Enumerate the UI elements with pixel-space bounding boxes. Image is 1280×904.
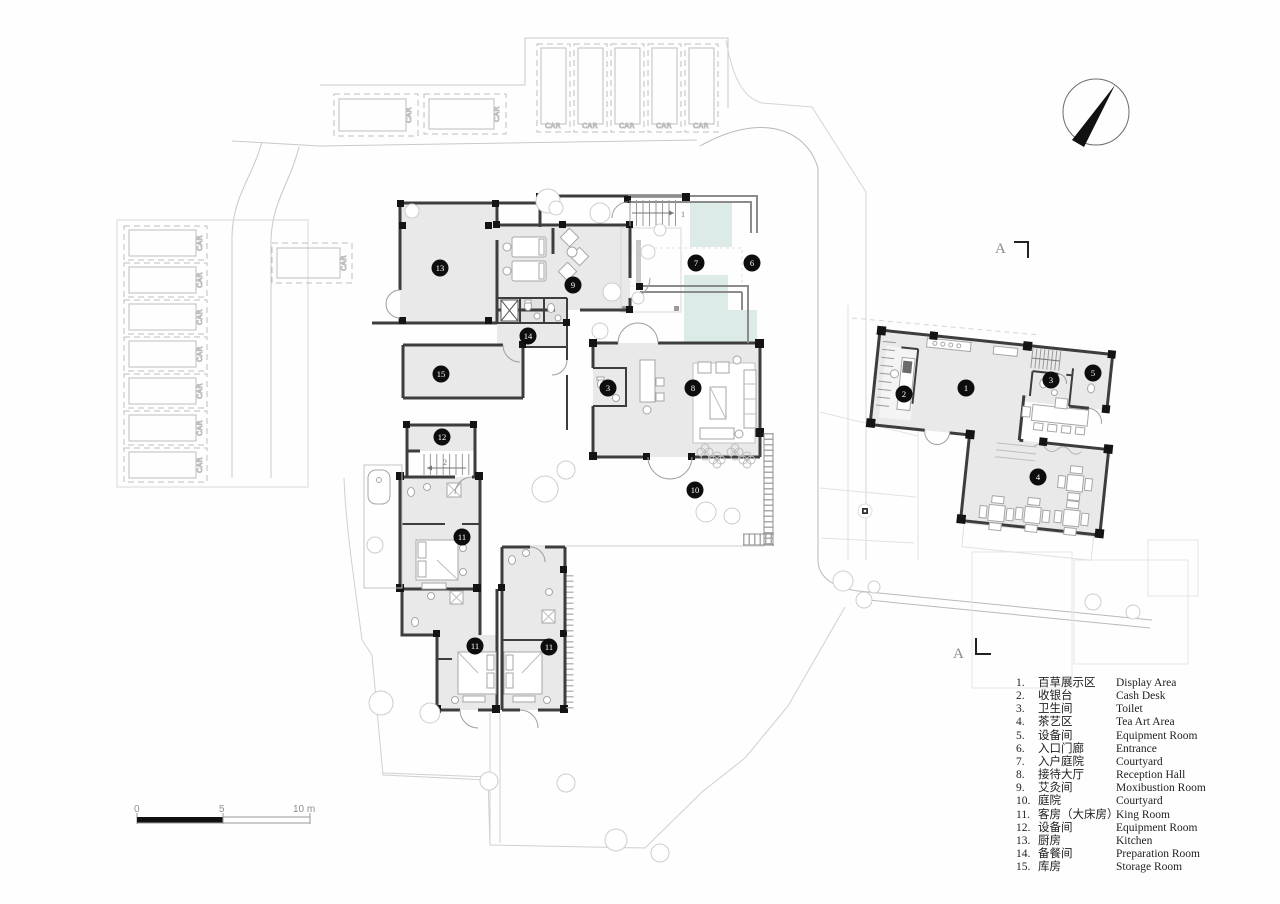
legend-label-zh: 入户庭院 [1038, 756, 1116, 769]
room-marker-number: 2 [902, 389, 906, 399]
legend-row: 12.设备间Equipment Room [1016, 822, 1216, 835]
car-space-label: CAR [196, 272, 204, 288]
parking-area-left: CAR CAR CAR CAR CAR CAR CAR CAR [124, 226, 352, 482]
legend-label-zh: 卫生间 [1038, 703, 1116, 716]
legend-label-en: Courtyard [1116, 756, 1216, 769]
legend-row: 6.入口门廊Entrance [1016, 743, 1216, 756]
legend-label-zh: 收银台 [1038, 690, 1116, 703]
car-space-label: CAR [693, 122, 709, 130]
legend-row: 10.庭院Courtyard [1016, 795, 1216, 808]
legend-number: 14. [1016, 848, 1038, 861]
car-space-label: CAR [340, 255, 348, 271]
legend-row: 14.备餐间Preparation Room [1016, 848, 1216, 861]
legend-row: 8.接待大厅Reception Hall [1016, 769, 1216, 782]
north-arrow [1063, 79, 1129, 147]
section-letter: A [953, 646, 964, 662]
legend-row: 1.百草展示区Display Area [1016, 677, 1216, 690]
site-point-marker [858, 504, 872, 518]
legend-label-en: Kitchen [1116, 835, 1216, 848]
room-marker-number: 9 [571, 280, 575, 290]
legend: 1.百草展示区Display Area2.收银台Cash Desk3.卫生间To… [1016, 677, 1216, 874]
stair-number-label: 2 [443, 458, 447, 467]
room-marker-number: 5 [1091, 368, 1095, 378]
legend-label-zh: 厨房 [1038, 835, 1116, 848]
legend-label-en: Preparation Room [1116, 848, 1216, 861]
scale-tick-label: 10 m [293, 804, 315, 815]
legend-label-en: Cash Desk [1116, 690, 1216, 703]
legend-number: 6. [1016, 743, 1038, 756]
north-arrow-needle [1072, 85, 1115, 147]
car-space-label: CAR [196, 457, 204, 473]
parking-area-top: CAR CAR CAR CAR CAR CAR CAR [334, 44, 718, 136]
legend-label-en: Display Area [1116, 677, 1216, 690]
legend-row: 15.库房Storage Room [1016, 861, 1216, 874]
legend-label-zh: 百草展示区 [1038, 677, 1116, 690]
legend-number: 5. [1016, 730, 1038, 743]
room-marker-number: 1 [964, 383, 968, 393]
car-space-label: CAR [405, 107, 413, 123]
legend-label-en: Moxibustion Room [1116, 782, 1216, 795]
legend-number: 3. [1016, 703, 1038, 716]
staircase-upper [630, 200, 676, 226]
legend-row: 13.厨房Kitchen [1016, 835, 1216, 848]
car-space-label: CAR [545, 122, 561, 130]
legend-number: 1. [1016, 677, 1038, 690]
annex-building [854, 326, 1123, 562]
legend-label-en: Equipment Room [1116, 822, 1216, 835]
legend-label-zh: 庭院 [1038, 795, 1116, 808]
legend-number: 11. [1016, 809, 1038, 822]
legend-label-zh: 设备间 [1038, 822, 1116, 835]
room-marker-number: 13 [436, 263, 445, 273]
room-marker-number: 11 [545, 642, 553, 652]
legend-number: 8. [1016, 769, 1038, 782]
car-space-label: CAR [619, 122, 635, 130]
car-space-label: CAR [656, 122, 672, 130]
legend-number: 10. [1016, 795, 1038, 808]
room-marker-number: 15 [437, 369, 446, 379]
legend-label-zh: 接待大厅 [1038, 769, 1116, 782]
legend-label-en: Toilet [1116, 703, 1216, 716]
legend-row: 11.客房（大床房）King Room [1016, 809, 1216, 822]
water-features [684, 203, 757, 343]
legend-row: 3.卫生间Toilet [1016, 703, 1216, 716]
legend-row: 9.艾灸间Moxibustion Room [1016, 782, 1216, 795]
legend-label-en: Tea Art Area [1116, 716, 1216, 729]
legend-label-en: King Room [1116, 809, 1216, 822]
legend-row: 7.入户庭院Courtyard [1016, 756, 1216, 769]
legend-label-en: Entrance [1116, 743, 1216, 756]
legend-label-zh: 艾灸间 [1038, 782, 1116, 795]
pergola-fence [570, 433, 774, 710]
car-space-label: CAR [196, 309, 204, 325]
room-marker-number: 8 [691, 383, 695, 393]
car-space-label: CAR [582, 122, 598, 130]
legend-number: 9. [1016, 782, 1038, 795]
legend-row: 4.茶艺区Tea Art Area [1016, 716, 1216, 729]
room-marker-number: 3 [1049, 375, 1053, 385]
legend-label-en: Reception Hall [1116, 769, 1216, 782]
legend-label-en: Courtyard [1116, 795, 1216, 808]
legend-label-zh: 库房 [1038, 861, 1116, 874]
stair-number-label: 1 [681, 210, 685, 219]
scale-bar: 0 5 10 m [134, 804, 315, 824]
legend-label-en: Equipment Room [1116, 730, 1216, 743]
car-space-label: CAR [196, 420, 204, 436]
section-letter: A [995, 241, 1006, 257]
legend-number: 2. [1016, 690, 1038, 703]
legend-label-zh: 备餐间 [1038, 848, 1116, 861]
car-space-label: CAR [493, 106, 501, 122]
room-marker-number: 3 [606, 383, 610, 393]
room-marker-number: 12 [438, 432, 447, 442]
legend-row: 5.设备间Equipment Room [1016, 730, 1216, 743]
scale-tick-label: 5 [219, 804, 225, 815]
room-marker-number: 11 [458, 532, 466, 542]
car-space-label: CAR [196, 235, 204, 251]
legend-label-zh: 客房（大床房） [1038, 809, 1116, 822]
legend-number: 12. [1016, 822, 1038, 835]
room-marker-number: 10 [691, 485, 700, 495]
legend-number: 7. [1016, 756, 1038, 769]
legend-number: 15. [1016, 861, 1038, 874]
car-space-label: CAR [196, 383, 204, 399]
section-marker-top: A [995, 241, 1028, 258]
legend-number: 13. [1016, 835, 1038, 848]
legend-label-zh: 入口门廊 [1038, 743, 1116, 756]
car-space-label: CAR [196, 346, 204, 362]
room-marker-number: 14 [524, 331, 533, 341]
room-marker-number: 11 [471, 641, 479, 651]
legend-label-en: Storage Room [1116, 861, 1216, 874]
legend-label-zh: 茶艺区 [1038, 716, 1116, 729]
legend-row: 2.收银台Cash Desk [1016, 690, 1216, 703]
legend-label-zh: 设备间 [1038, 730, 1116, 743]
room-marker-number: 7 [694, 258, 698, 268]
room-marker-number: 6 [750, 258, 754, 268]
legend-number: 4. [1016, 716, 1038, 729]
site-plan-canvas: CAR CAR CAR CAR CAR CAR CAR CAR CAR CAR … [0, 0, 1280, 904]
